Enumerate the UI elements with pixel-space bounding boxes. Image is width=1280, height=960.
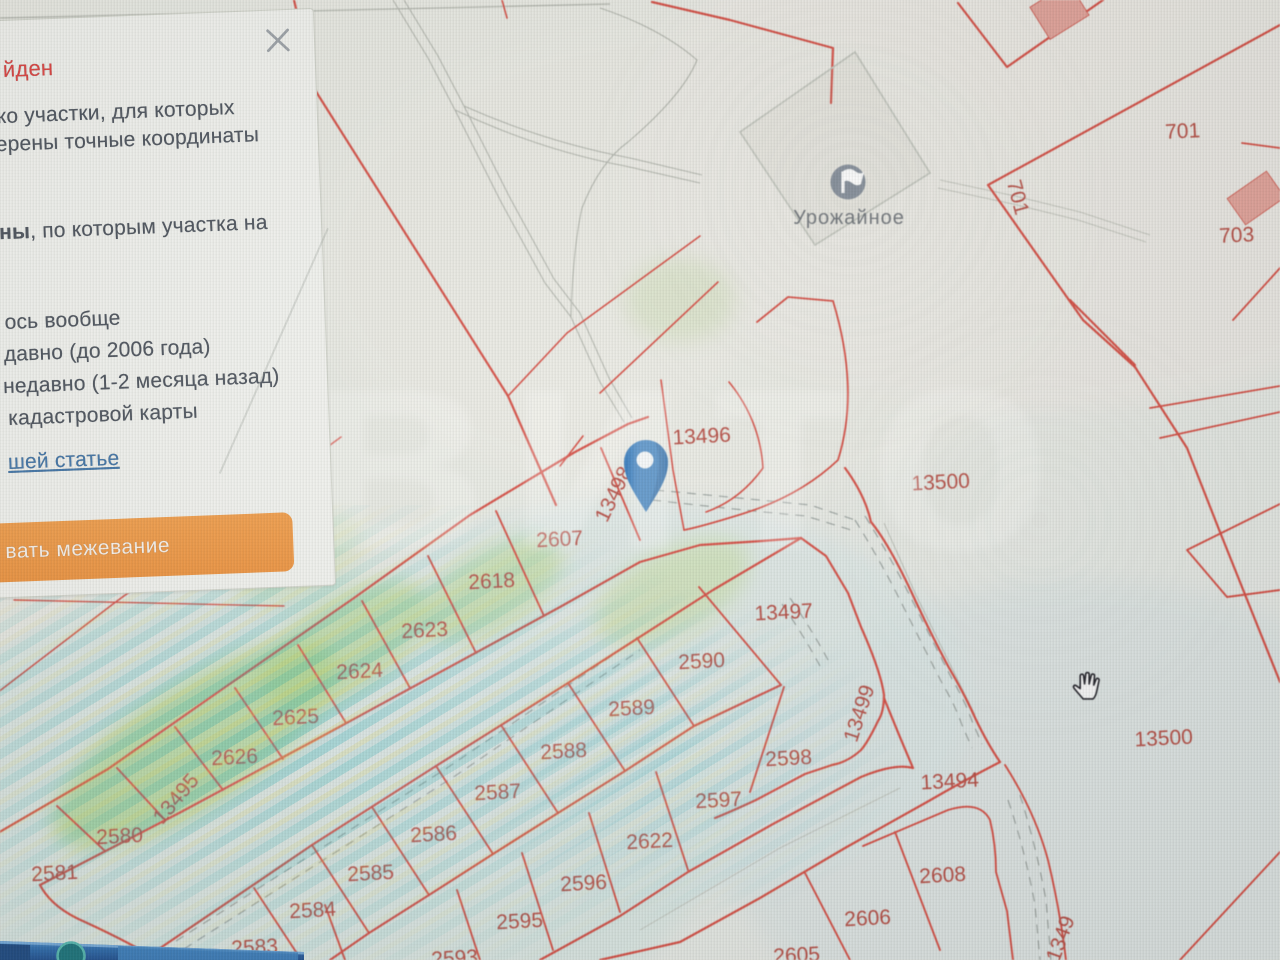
svg-text:2593: 2593 xyxy=(431,946,479,960)
svg-text:2589: 2589 xyxy=(608,696,656,721)
svg-text:13494: 13494 xyxy=(920,768,980,794)
svg-text:2581: 2581 xyxy=(31,861,79,886)
svg-text:13500: 13500 xyxy=(911,469,971,495)
svg-text:2624: 2624 xyxy=(336,659,384,684)
svg-text:2608: 2608 xyxy=(919,863,967,888)
svg-text:703: 703 xyxy=(1219,223,1255,248)
svg-text:13497: 13497 xyxy=(754,599,814,625)
svg-text:2586: 2586 xyxy=(410,822,458,847)
svg-text:701: 701 xyxy=(1165,119,1201,144)
svg-text:2596: 2596 xyxy=(560,871,608,896)
svg-text:13496: 13496 xyxy=(672,423,732,449)
svg-text:2587: 2587 xyxy=(474,780,522,805)
svg-text:2595: 2595 xyxy=(496,909,544,934)
svg-text:2597: 2597 xyxy=(695,788,743,813)
svg-text:2598: 2598 xyxy=(765,746,813,771)
svg-text:2623: 2623 xyxy=(401,618,449,643)
svg-text:2622: 2622 xyxy=(626,829,674,854)
svg-text:13500: 13500 xyxy=(1134,725,1194,751)
svg-text:2590: 2590 xyxy=(678,649,726,674)
svg-text:2580: 2580 xyxy=(96,824,144,849)
svg-text:2584: 2584 xyxy=(289,898,337,923)
svg-text:2588: 2588 xyxy=(540,739,588,764)
svg-text:2585: 2585 xyxy=(347,861,395,886)
svg-text:2626: 2626 xyxy=(211,745,259,770)
svg-text:2618: 2618 xyxy=(468,569,516,594)
svg-text:2607: 2607 xyxy=(536,527,584,552)
svg-text:2605: 2605 xyxy=(773,943,821,960)
svg-text:2606: 2606 xyxy=(844,906,892,931)
svg-text:2583: 2583 xyxy=(231,935,279,960)
svg-text:Урожайное: Урожайное xyxy=(793,207,905,229)
svg-text:2625: 2625 xyxy=(272,705,320,730)
